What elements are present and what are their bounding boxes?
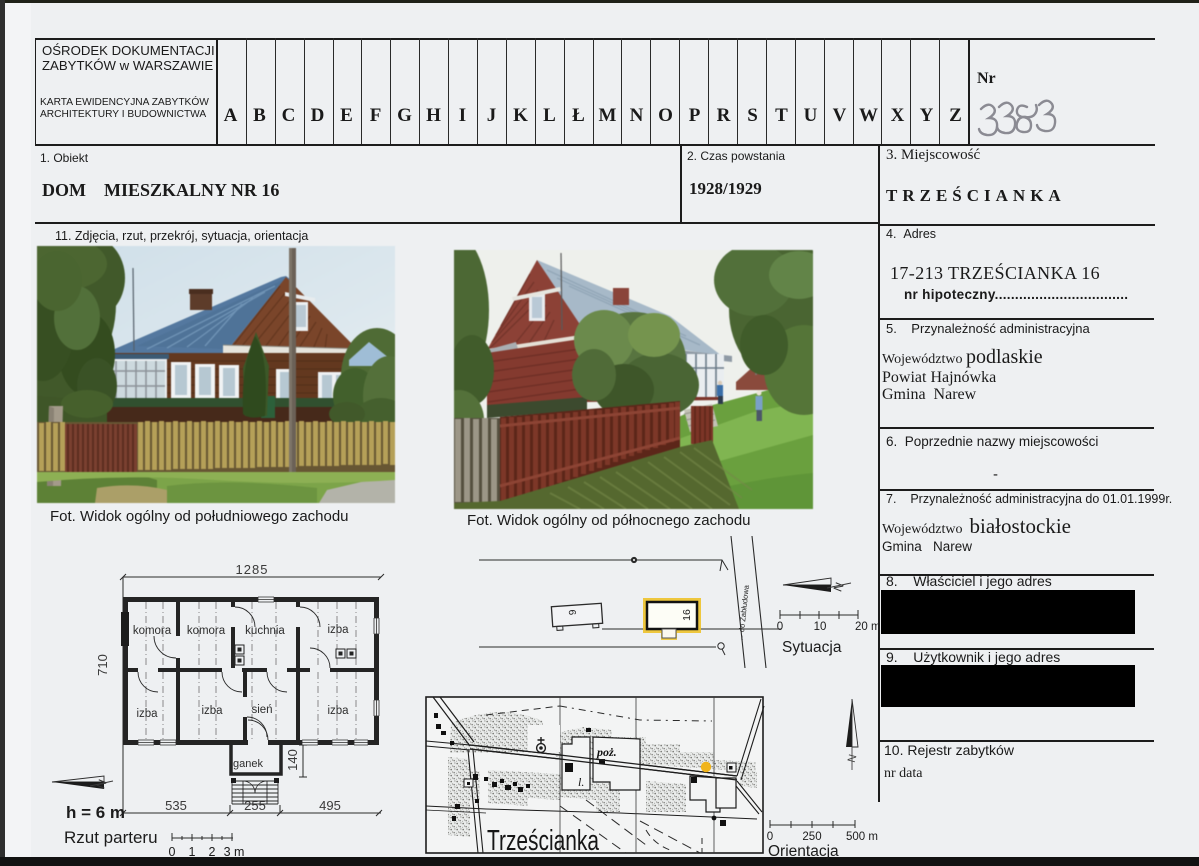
svg-text:← do Zabłudowa: ← do Zabłudowa: [736, 584, 751, 642]
svg-text:140: 140: [285, 749, 300, 771]
svg-text:N: N: [846, 753, 860, 764]
svg-text:poż.: poż.: [596, 745, 617, 759]
svg-text:535: 535: [165, 798, 187, 813]
svg-text:1: 1: [189, 845, 196, 859]
svg-text:Sytuacja: Sytuacja: [782, 639, 842, 656]
svg-text:500 m: 500 m: [846, 831, 878, 843]
svg-text:izba: izba: [136, 708, 158, 720]
svg-text:0: 0: [767, 831, 773, 843]
svg-text:2: 2: [209, 845, 216, 859]
svg-text:sień: sień: [251, 704, 272, 716]
svg-text:10: 10: [814, 621, 827, 633]
svg-text:0: 0: [777, 621, 783, 633]
svg-text:ganek: ganek: [233, 758, 263, 770]
svg-text:710: 710: [95, 654, 110, 676]
svg-text:250: 250: [802, 831, 821, 843]
svg-text:20 m: 20 m: [855, 621, 880, 633]
svg-text:kuchnia: kuchnia: [245, 625, 285, 637]
svg-text:izba: izba: [201, 705, 223, 717]
svg-text:komora: komora: [133, 625, 172, 637]
svg-text:1285: 1285: [236, 562, 269, 577]
svg-text:N: N: [94, 777, 110, 790]
svg-text:3 m: 3 m: [224, 845, 245, 859]
svg-text:495: 495: [319, 798, 341, 813]
svg-text:komora: komora: [187, 625, 226, 637]
svg-text:l.: l.: [578, 775, 584, 789]
svg-text:Orientacja: Orientacja: [768, 843, 839, 860]
svg-text:Rzut parteru: Rzut parteru: [64, 828, 158, 847]
svg-text:Trześcianka: Trześcianka: [487, 825, 600, 857]
svg-text:0: 0: [169, 845, 176, 859]
svg-text:izba: izba: [327, 624, 349, 636]
svg-text:h = 6 m: h = 6 m: [66, 803, 125, 822]
svg-text:255: 255: [244, 798, 266, 813]
svg-text:izba: izba: [327, 705, 349, 717]
svg-text:16: 16: [681, 609, 693, 621]
